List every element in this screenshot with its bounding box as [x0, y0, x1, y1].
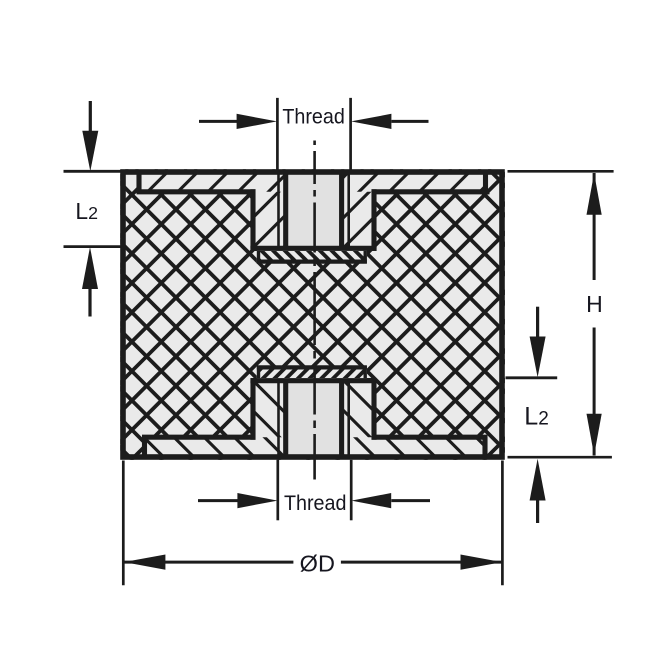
svg-text:Thread: Thread [282, 104, 345, 128]
svg-text:H: H [586, 291, 603, 317]
svg-text:ØD: ØD [300, 550, 335, 576]
svg-text:Thread: Thread [284, 491, 347, 515]
